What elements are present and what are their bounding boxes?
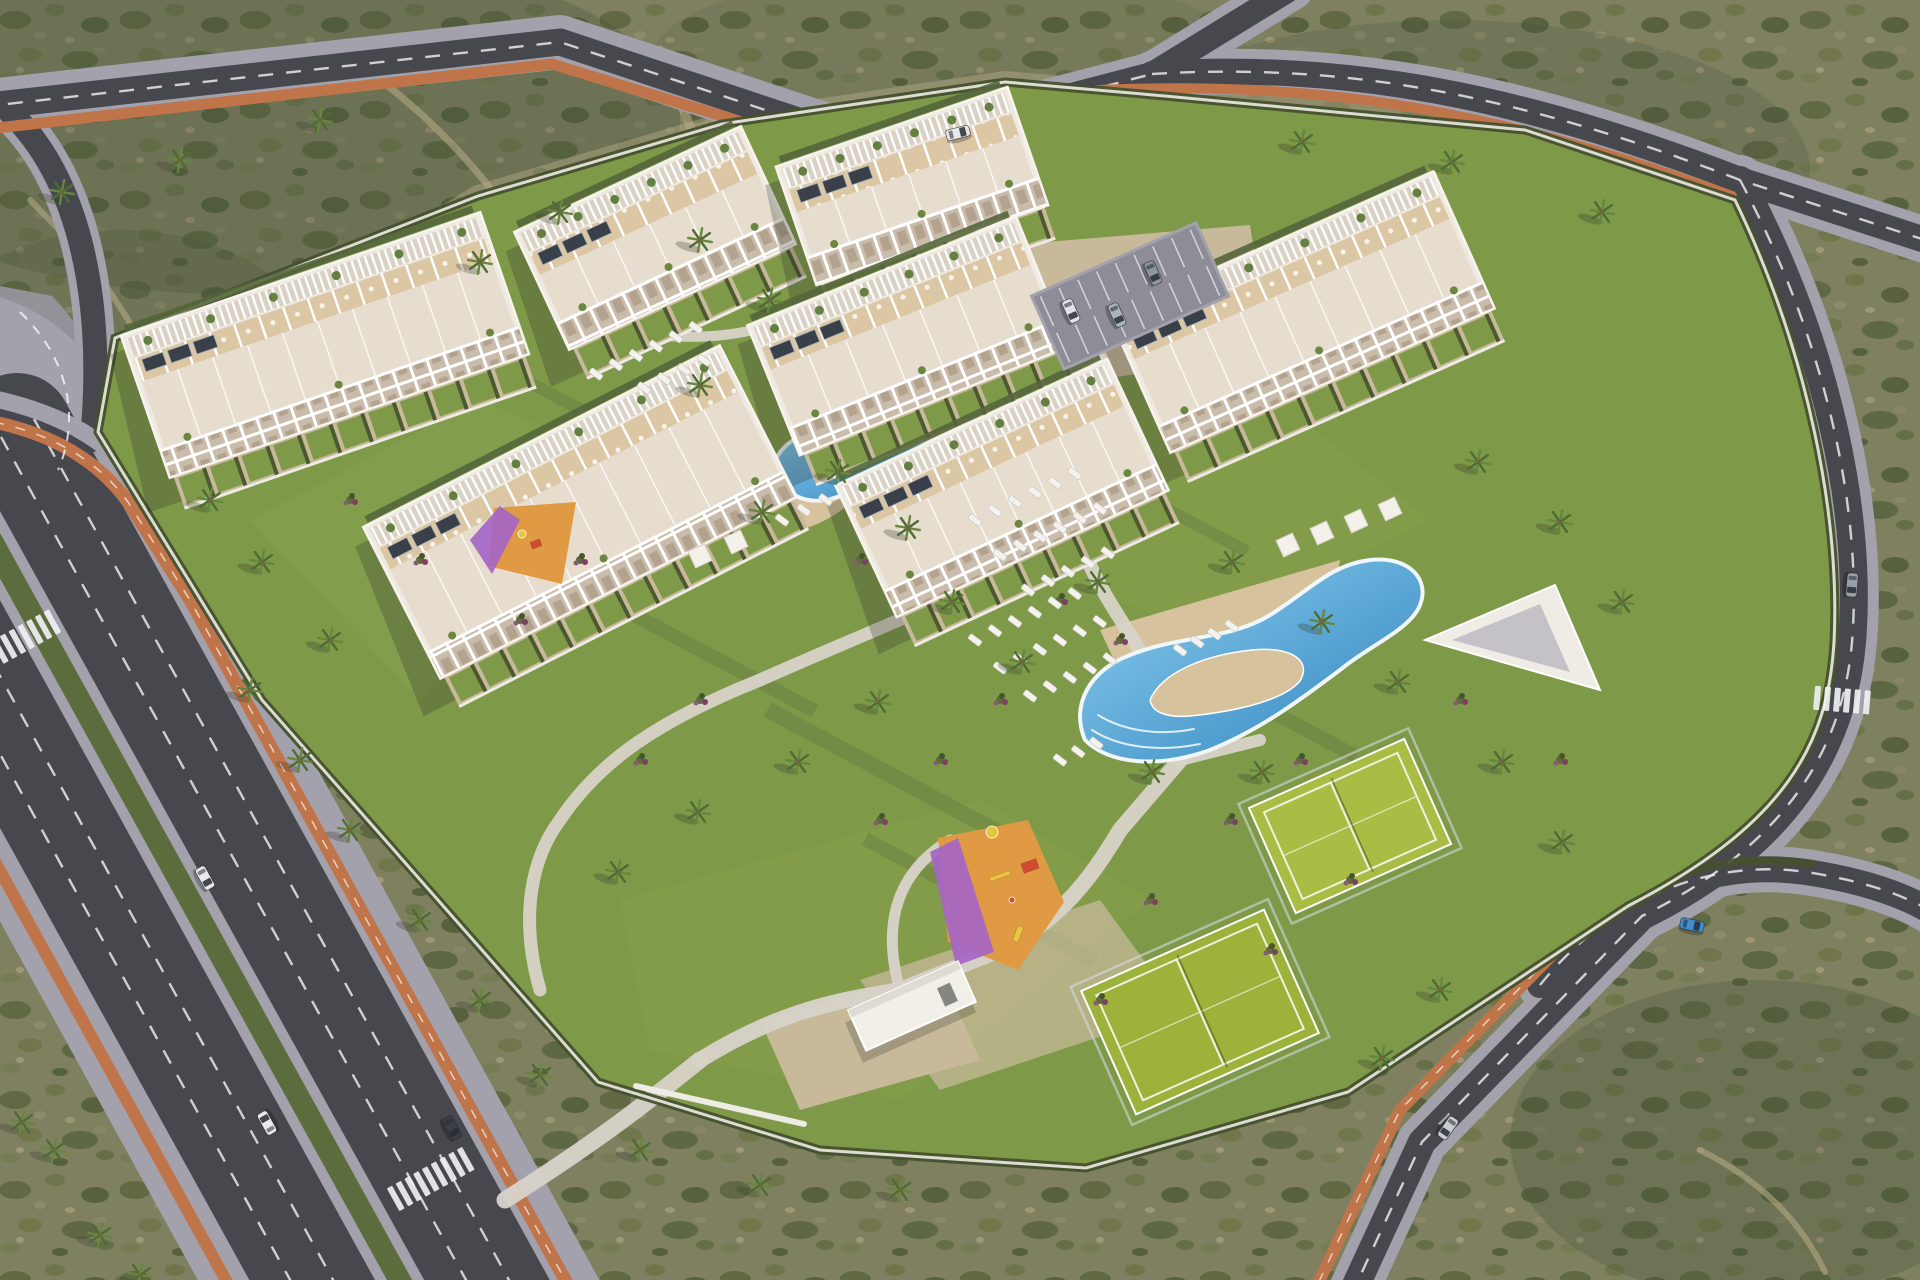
aerial-site-render-canvas — [0, 0, 1920, 1280]
aerial-site-render — [0, 0, 1920, 1280]
